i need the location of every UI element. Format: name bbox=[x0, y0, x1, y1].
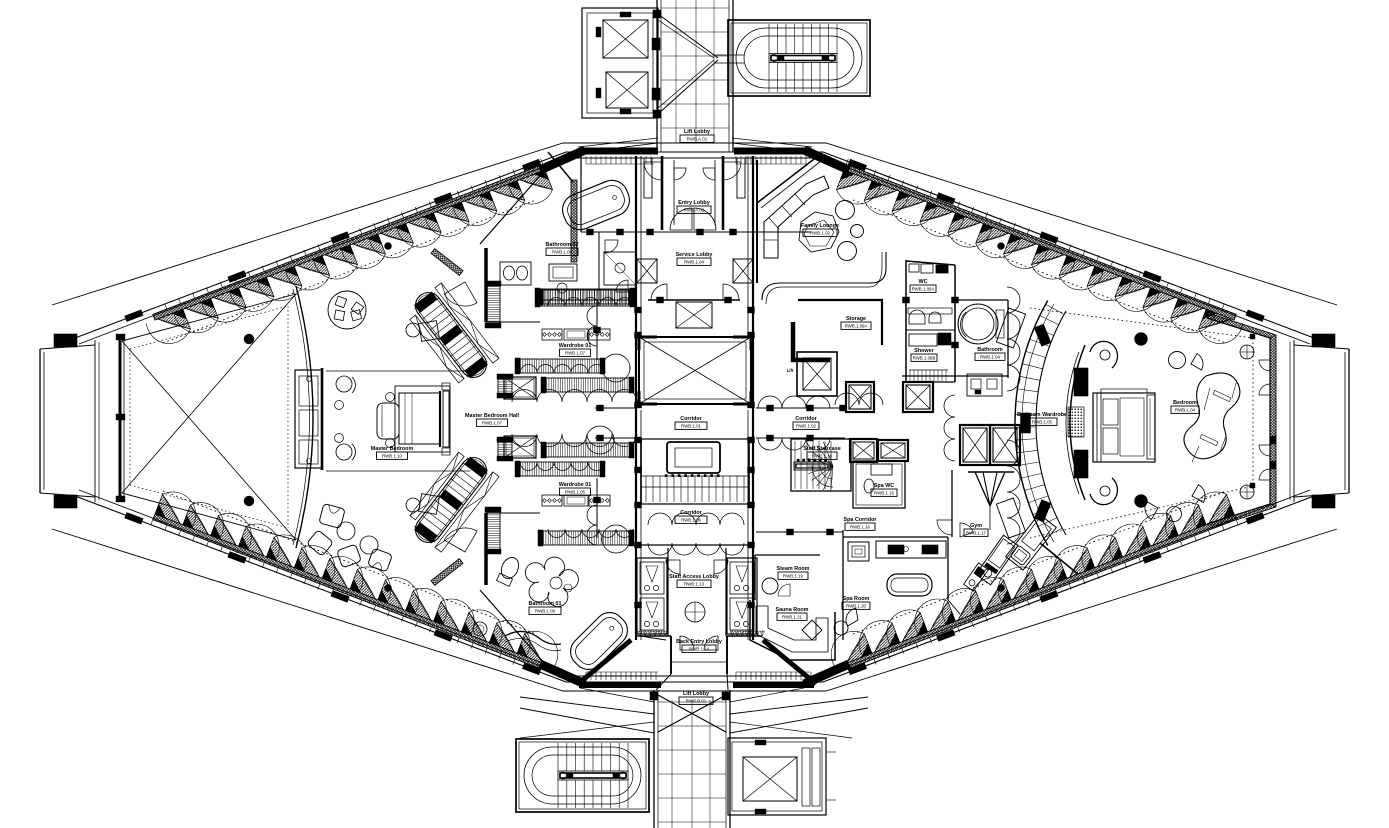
svg-text:Spa Room: Spa Room bbox=[843, 596, 870, 602]
svg-text:Staff Access Lobby: Staff Access Lobby bbox=[669, 574, 719, 580]
svg-text:RWB.1.09: RWB.1.09 bbox=[535, 609, 555, 614]
svg-text:RWB.1.09B: RWB.1.09B bbox=[913, 356, 936, 361]
svg-text:RWB.1.16: RWB.1.16 bbox=[850, 525, 870, 530]
svg-text:RWB.1.04: RWB.1.04 bbox=[1175, 408, 1195, 413]
svg-text:Bathroom: Bathroom bbox=[977, 347, 1003, 353]
svg-text:Corridor: Corridor bbox=[680, 416, 702, 422]
svg-text:Corridor: Corridor bbox=[795, 416, 817, 422]
svg-text:Sauna Room: Sauna Room bbox=[776, 607, 809, 613]
svg-text:Storage: Storage bbox=[846, 316, 866, 322]
svg-text:RWB.1.17: RWB.1.17 bbox=[966, 531, 986, 536]
svg-text:RWB.1.04: RWB.1.04 bbox=[980, 355, 1000, 360]
svg-text:RWB.1.05: RWB.1.05 bbox=[1032, 420, 1052, 425]
svg-text:Master Bedroom Hall: Master Bedroom Hall bbox=[465, 413, 519, 419]
svg-text:RWB.1.01: RWB.1.01 bbox=[681, 424, 701, 429]
svg-text:Bathroom 02: Bathroom 02 bbox=[546, 242, 579, 248]
svg-text:RWB.1.09A: RWB.1.09A bbox=[845, 324, 868, 329]
svg-text:RWB.B.01: RWB.B.01 bbox=[686, 699, 707, 704]
svg-text:Spa WC: Spa WC bbox=[874, 483, 894, 489]
svg-text:RWB.1.13: RWB.1.13 bbox=[684, 582, 704, 587]
svg-text:RWB.1.02: RWB.1.02 bbox=[796, 424, 816, 429]
svg-text:Lift Lobby: Lift Lobby bbox=[684, 129, 710, 135]
svg-text:Back Entry Lobby: Back Entry Lobby bbox=[676, 639, 722, 645]
svg-text:Lift Lobby: Lift Lobby bbox=[683, 691, 709, 697]
svg-text:Entry Lobby: Entry Lobby bbox=[678, 200, 709, 206]
svg-text:RWB.1.06: RWB.1.06 bbox=[681, 518, 701, 523]
svg-text:Family Lounge: Family Lounge bbox=[801, 223, 839, 229]
svg-text:RWB.1.07: RWB.1.07 bbox=[565, 351, 585, 356]
svg-text:RWB.1.14: RWB.1.14 bbox=[689, 647, 709, 652]
svg-text:RWB.1.07: RWB.1.07 bbox=[482, 421, 502, 426]
svg-text:RWB.A.02: RWB.A.02 bbox=[684, 208, 705, 213]
svg-text:RWB.1.05: RWB.1.05 bbox=[565, 490, 585, 495]
svg-text:RWB.A.01: RWB.A.01 bbox=[687, 137, 708, 142]
svg-text:WC: WC bbox=[919, 279, 928, 285]
svg-text:Master Bedroom: Master Bedroom bbox=[371, 446, 414, 452]
svg-text:RWB.1.18: RWB.1.18 bbox=[812, 454, 832, 459]
svg-text:RWB.1.02: RWB.1.02 bbox=[810, 231, 830, 236]
svg-text:RWB.1.04: RWB.1.04 bbox=[684, 260, 704, 265]
svg-text:Lift: Lift bbox=[787, 368, 794, 373]
svg-text:RWB.1.20: RWB.1.20 bbox=[846, 604, 866, 609]
svg-text:Spa Corridor: Spa Corridor bbox=[844, 517, 878, 523]
svg-text:RWB.1.21: RWB.1.21 bbox=[782, 615, 802, 620]
svg-text:RWB.1.09A: RWB.1.09A bbox=[912, 287, 935, 292]
svg-text:Service Lobby: Service Lobby bbox=[676, 252, 713, 258]
svg-text:Bedroom: Bedroom bbox=[1173, 400, 1197, 406]
svg-text:Shower: Shower bbox=[914, 348, 934, 354]
svg-text:Wardrobe 01: Wardrobe 01 bbox=[559, 343, 591, 349]
svg-text:Steam Room: Steam Room bbox=[777, 566, 810, 572]
svg-text:Bedroom Wardrobe: Bedroom Wardrobe bbox=[1017, 412, 1067, 418]
svg-text:RWB.1.19: RWB.1.19 bbox=[783, 574, 803, 579]
svg-text:Bathroom 01: Bathroom 01 bbox=[529, 601, 562, 607]
svg-text:Gym: Gym bbox=[970, 523, 982, 529]
svg-text:RWB.1.10: RWB.1.10 bbox=[382, 454, 402, 459]
svg-text:Wardrobe 01: Wardrobe 01 bbox=[559, 482, 591, 488]
svg-text:RWB.1.08: RWB.1.08 bbox=[552, 250, 572, 255]
svg-text:RWB.1.15: RWB.1.15 bbox=[874, 491, 894, 496]
